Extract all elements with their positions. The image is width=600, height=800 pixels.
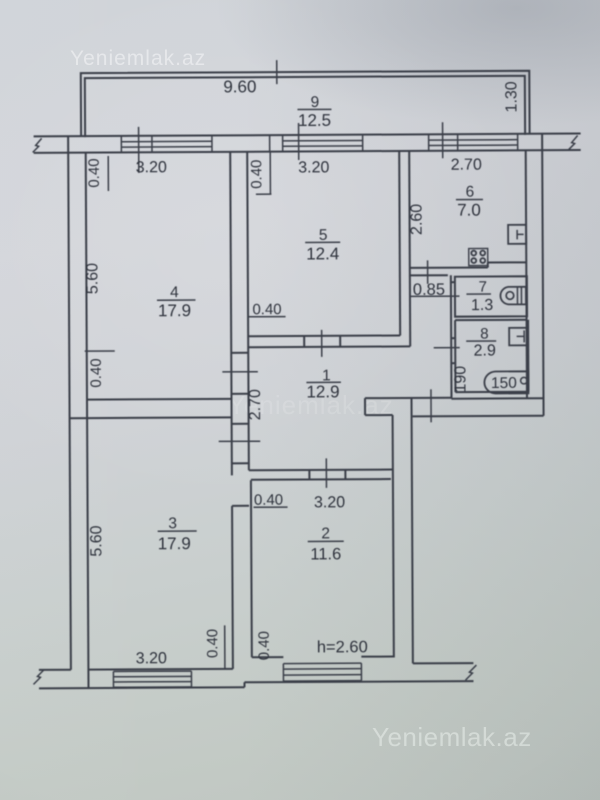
- svg-text:3: 3: [168, 515, 177, 532]
- svg-text:3.20: 3.20: [298, 159, 329, 176]
- svg-text:0.85: 0.85: [413, 281, 445, 299]
- svg-text:1.3: 1.3: [471, 297, 493, 314]
- svg-text:17.9: 17.9: [158, 301, 191, 320]
- svg-text:5.60: 5.60: [84, 263, 101, 294]
- svg-text:0.40: 0.40: [256, 631, 273, 660]
- svg-text:6: 6: [466, 184, 475, 201]
- svg-text:2.70: 2.70: [451, 157, 482, 174]
- svg-text:0.40: 0.40: [86, 158, 103, 187]
- svg-text:0.40: 0.40: [254, 492, 283, 509]
- svg-text:9: 9: [311, 94, 320, 111]
- svg-text:8: 8: [480, 326, 488, 343]
- svg-text:9.60: 9.60: [223, 77, 256, 96]
- svg-text:0.40: 0.40: [88, 358, 105, 387]
- svg-text:150: 150: [491, 375, 517, 392]
- svg-text:0.40: 0.40: [252, 301, 281, 318]
- svg-text:2.70: 2.70: [247, 389, 264, 420]
- svg-text:4: 4: [170, 284, 179, 301]
- svg-text:0.40: 0.40: [204, 629, 221, 658]
- svg-text:2.9: 2.9: [474, 342, 496, 359]
- svg-text:0.40: 0.40: [248, 160, 265, 189]
- svg-text:2: 2: [321, 525, 330, 542]
- svg-text:h=2.60: h=2.60: [317, 638, 368, 656]
- svg-text:12.5: 12.5: [298, 111, 331, 130]
- svg-text:5: 5: [319, 227, 328, 244]
- svg-text:2.60: 2.60: [408, 204, 425, 235]
- svg-text:1.30: 1.30: [503, 81, 520, 112]
- svg-text:12.4: 12.4: [306, 244, 339, 263]
- svg-text:12.9: 12.9: [306, 382, 339, 401]
- svg-text:17.9: 17.9: [158, 534, 191, 553]
- svg-text:3.20: 3.20: [136, 159, 167, 176]
- svg-text:3.20: 3.20: [136, 650, 167, 667]
- svg-text:7: 7: [479, 279, 487, 296]
- svg-text:190: 190: [452, 366, 469, 393]
- svg-text:7.0: 7.0: [457, 201, 481, 220]
- svg-text:11.6: 11.6: [310, 545, 341, 563]
- svg-text:5.60: 5.60: [88, 525, 105, 556]
- svg-text:3.20: 3.20: [314, 494, 345, 511]
